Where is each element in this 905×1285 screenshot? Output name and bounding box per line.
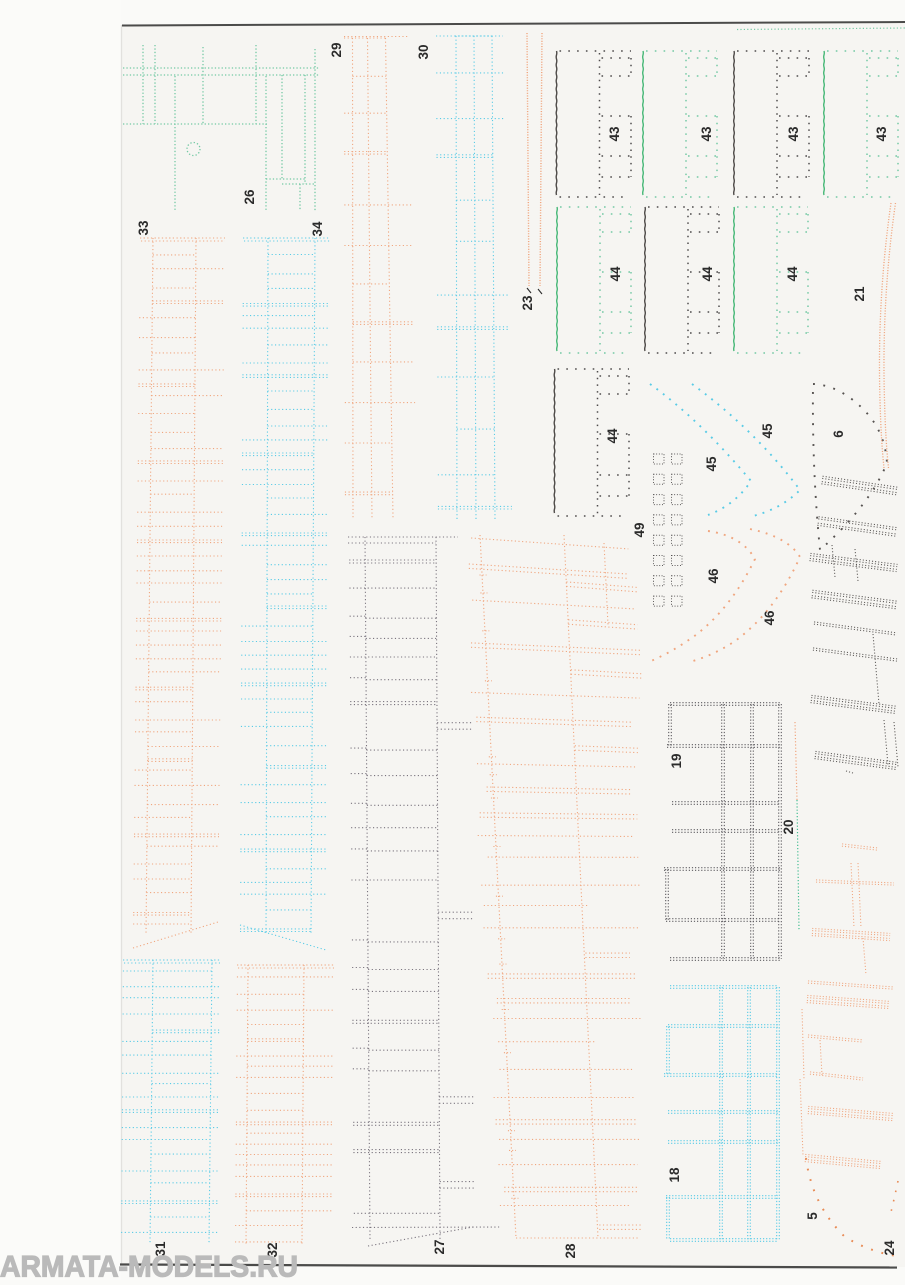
svg-text:30: 30 [416, 44, 431, 59]
svg-text:44: 44 [785, 266, 800, 282]
svg-text:43: 43 [874, 126, 889, 142]
svg-text:19: 19 [669, 753, 684, 768]
svg-text:23: 23 [520, 295, 535, 311]
svg-text:49: 49 [632, 522, 647, 537]
svg-text:45: 45 [760, 423, 775, 439]
svg-text:29: 29 [329, 42, 344, 57]
svg-text:44: 44 [608, 266, 623, 282]
svg-text:44: 44 [605, 428, 620, 444]
svg-text:6: 6 [831, 430, 846, 438]
svg-text:34: 34 [310, 221, 325, 237]
svg-text:44: 44 [700, 266, 715, 282]
svg-text:20: 20 [781, 819, 796, 834]
svg-text:21: 21 [852, 286, 867, 302]
svg-text:46: 46 [762, 610, 777, 626]
svg-text:ARMATA-MODELS.RU: ARMATA-MODELS.RU [0, 1251, 298, 1281]
svg-text:33: 33 [136, 220, 151, 236]
svg-text:24: 24 [882, 1240, 897, 1256]
svg-text:43: 43 [786, 126, 801, 142]
svg-text:43: 43 [699, 126, 714, 142]
svg-text:45: 45 [704, 456, 719, 472]
svg-text:26: 26 [242, 189, 257, 205]
svg-text:18: 18 [667, 1167, 682, 1183]
svg-text:43: 43 [607, 126, 622, 142]
svg-text:27: 27 [432, 1239, 447, 1254]
svg-text:5: 5 [805, 1212, 820, 1220]
svg-text:46: 46 [706, 568, 721, 584]
svg-text:28: 28 [563, 1243, 578, 1259]
